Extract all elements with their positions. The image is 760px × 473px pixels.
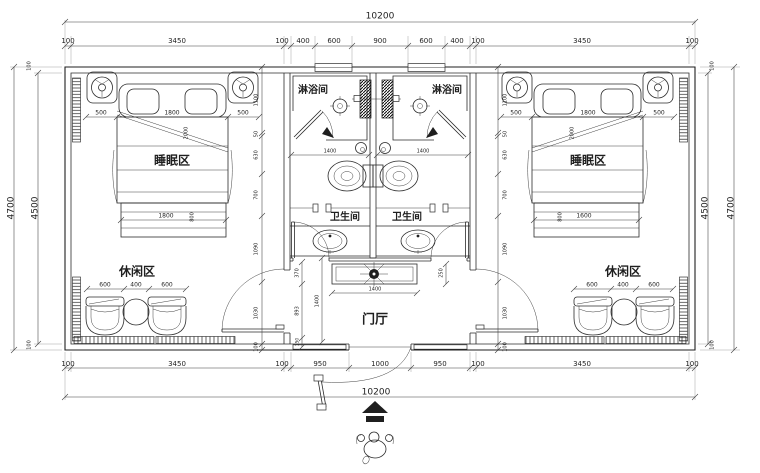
window-sill-left-b [156, 337, 235, 344]
dim-right-inner: 4500 [701, 196, 711, 219]
downlight-icon [651, 80, 665, 98]
downlight-icon [510, 80, 524, 98]
armchair [86, 297, 124, 335]
dim-bed: 500 [237, 110, 249, 117]
dim-bed: 1800 [158, 213, 173, 220]
dim-lounge: 400 [130, 282, 142, 289]
dim-wall: 100 [710, 61, 716, 71]
dim-hall: 893 [295, 306, 301, 316]
dim-chain: 1100 [503, 94, 509, 107]
ceiling-fan-icon [360, 262, 388, 286]
toilet-roll-icon [356, 143, 367, 154]
dim-bottom: 100 [471, 360, 484, 368]
label-lounge-left: 休闲区 [118, 264, 155, 279]
dim-bath: 1400 [324, 149, 337, 155]
dim-chain: 700 [254, 190, 260, 200]
dim-left-outer: 4700 [7, 196, 17, 219]
dim-top: 100 [471, 37, 484, 45]
shower-head-icon [330, 96, 350, 116]
dim-wall: 100 [27, 340, 33, 350]
door-left-bedroom [222, 269, 284, 332]
dim-chain: 1100 [254, 94, 260, 107]
door-wc-left [292, 222, 330, 258]
radiator-right-top [680, 78, 688, 142]
door-stop [430, 204, 435, 212]
entry-marker [357, 401, 394, 465]
dim-chain: 700 [503, 190, 509, 200]
door-right-bedroom [476, 269, 538, 332]
walls [65, 67, 695, 350]
dim-right-outer: 4700 [727, 196, 737, 219]
toilet-roll-icon [380, 143, 391, 154]
window-sill-right-b [606, 337, 686, 344]
dim-top: 900 [373, 37, 386, 45]
pillow [185, 89, 217, 114]
pillow [543, 89, 575, 114]
entry-arrow-icon [362, 401, 388, 413]
dim-hall: 1400 [315, 295, 321, 308]
dim-bottom: 100 [61, 360, 74, 368]
dim-chain: 100 [254, 342, 260, 352]
radiator-right-bottom [680, 277, 688, 341]
dim-bed: 500 [510, 110, 522, 117]
dim-bed: 2000 [570, 127, 576, 140]
dim-lounge: 600 [648, 282, 660, 289]
label-shower-right: 淋浴间 [432, 83, 462, 96]
dim-hall: 150 [295, 338, 301, 347]
dim-lounge: 600 [161, 282, 173, 289]
armchair [148, 297, 186, 335]
pipe-valve-left [354, 96, 360, 102]
dim-bed: 500 [653, 110, 665, 117]
dim-bed: 500 [95, 110, 107, 117]
dim-wall: 100 [710, 340, 716, 350]
label-wc-right: 卫生间 [392, 210, 422, 223]
door-wc-right [431, 222, 469, 258]
armchair [636, 297, 674, 335]
window-sill-right-a [525, 337, 604, 344]
dim-chain: 1030 [254, 307, 260, 320]
window-bottom-left-service [293, 345, 346, 349]
dim-top: 3450 [573, 37, 591, 45]
window-sill-left-a [74, 337, 154, 344]
person-icon [357, 432, 394, 465]
dim-top: 600 [419, 37, 432, 45]
dim-lounge: 400 [617, 282, 629, 289]
dim-lounge: 600 [586, 282, 598, 289]
downlight-icon [236, 80, 250, 98]
dim-bed: 2000 [184, 127, 190, 140]
pillow [601, 89, 633, 114]
side-table [611, 299, 637, 325]
radiator-left-bottom [73, 277, 81, 341]
downlight-icon [95, 80, 109, 98]
label-sleep-left: 睡眠区 [154, 153, 190, 168]
pipe-valve-right [393, 96, 399, 102]
dim-top: 400 [296, 37, 309, 45]
label-sleep-right: 睡眠区 [570, 153, 606, 168]
sink-right [401, 230, 435, 254]
dim-cabinet: 250 [439, 268, 445, 278]
label-hall: 门厅 [362, 312, 388, 328]
sink-left [313, 230, 347, 254]
dim-chain: 1090 [503, 243, 509, 256]
label-lounge-right: 休闲区 [604, 264, 641, 279]
dim-bottom: 3450 [168, 360, 186, 368]
dim-chain: 1090 [254, 243, 260, 256]
armchair [574, 297, 612, 335]
floor-plan-drawing: 双间客房平面布置图 floor plan [0, 0, 760, 473]
side-table [123, 299, 149, 325]
door-stop [443, 204, 448, 212]
dim-chain: 50 [254, 131, 260, 137]
dim-bed: 800 [558, 212, 564, 222]
radiator-left-top [73, 78, 81, 142]
dim-top: 400 [450, 37, 463, 45]
toilet-right [373, 161, 418, 191]
dim-bottom: 1000 [371, 360, 389, 368]
dim-top: 100 [685, 37, 698, 45]
dim-chain: 100 [503, 342, 509, 352]
dim-cabinet: 1400 [369, 287, 382, 293]
dim-bottom: 950 [313, 360, 326, 368]
dim-left-inner: 4500 [31, 196, 41, 219]
dim-bath: 1400 [417, 149, 430, 155]
bathroom-core [290, 76, 470, 286]
door-shower-right [426, 110, 466, 139]
label-wc-left: 卫生间 [330, 210, 360, 223]
toilet-left [328, 161, 373, 191]
dim-top: 3450 [168, 37, 186, 45]
dim-bottom: 3450 [573, 360, 591, 368]
door-stop [313, 204, 318, 212]
dim-top: 100 [61, 37, 74, 45]
dim-top: 100 [275, 37, 288, 45]
shower-head-icon [410, 96, 430, 116]
dim-bottom: 100 [685, 360, 698, 368]
dim-chain: 50 [503, 131, 509, 137]
dim-bottom: 950 [433, 360, 446, 368]
dim-bed: 1800 [580, 110, 595, 117]
door-shower-left [294, 110, 334, 139]
dim-bottom: 100 [275, 360, 288, 368]
dim-hall: 370 [295, 268, 301, 278]
dim-bed: 1600 [576, 213, 591, 220]
dim-chain: 1030 [503, 307, 509, 320]
dim-bed: 1800 [164, 110, 179, 117]
dim-wall: 100 [27, 61, 33, 71]
window-bottom-right-service [414, 345, 467, 349]
door-entry [314, 347, 411, 410]
dim-chain: 630 [503, 150, 509, 160]
dim-bottom-overall: 10200 [362, 388, 391, 398]
dim-top: 600 [327, 37, 340, 45]
dim-top-overall: 10200 [366, 12, 395, 22]
label-shower-left: 淋浴间 [298, 83, 328, 96]
dim-bed: 800 [190, 212, 196, 222]
door-stop [326, 204, 331, 212]
dim-lounge: 600 [99, 282, 111, 289]
dim-chain: 630 [254, 150, 260, 160]
pillow [127, 89, 159, 114]
